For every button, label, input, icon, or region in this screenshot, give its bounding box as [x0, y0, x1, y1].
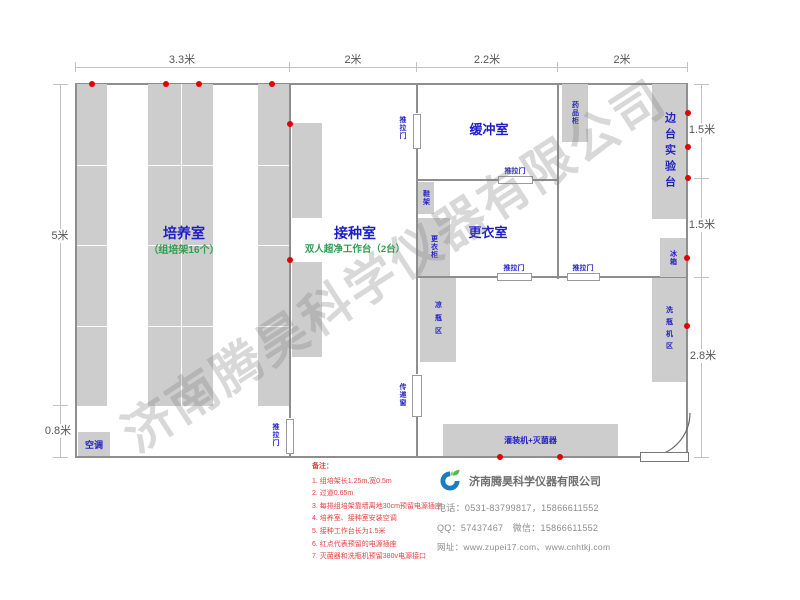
medicine-cabinet: 药品柜: [562, 84, 588, 142]
power-outlet-dot: [685, 175, 691, 181]
room-sub-inoculation: 双人超净工作台（2台）: [281, 241, 429, 255]
power-outlet-dot: [196, 81, 202, 87]
sliding-door-changing-south-label: 推拉门: [493, 263, 535, 273]
dim-label-top-2: 2米: [328, 53, 378, 67]
power-outlet-dot: [287, 121, 293, 127]
shoe-rack-label: 鞋架: [423, 190, 430, 206]
power-outlet-dot: [685, 110, 691, 116]
transfer-window: [412, 375, 422, 417]
company-name: 济南腾昊科学仪器有限公司: [469, 473, 601, 489]
dim-label-top-3: 2.2米: [457, 53, 517, 67]
room-label-changing: 更衣室: [438, 222, 538, 241]
power-outlet-dot: [163, 81, 169, 87]
sliding-door-changing-south: [497, 273, 532, 281]
bottle-cooling-area: 凉瓶区: [420, 278, 456, 362]
dim-label-top-4: 2米: [597, 53, 647, 67]
dim-tick: [75, 62, 76, 72]
dim-label-right-3: 2.8米: [682, 349, 724, 363]
dim-tick: [694, 457, 709, 458]
note-item: 7. 灭菌器和洗瓶机预留380v电源接口: [312, 551, 472, 564]
culture-rack-column-1: [77, 84, 107, 406]
company-phone: 电话：0531-83799817，15866611552: [437, 501, 657, 514]
transfer-window-label: 传递窗: [399, 383, 406, 407]
air-conditioner: 空调: [78, 432, 110, 456]
air-conditioner-label: 空调: [85, 438, 103, 451]
room-sub-culture: （组培架16个）: [120, 241, 248, 256]
wall-buffer-changing: [417, 179, 558, 181]
sliding-door-buffer-label: 推拉门: [399, 116, 406, 140]
wall-changing-bottom: [417, 276, 688, 278]
power-outlet-dot: [287, 257, 293, 263]
dim-tick: [289, 62, 290, 72]
power-outlet-dot: [684, 323, 690, 329]
floor-plan: 3.3米 2米 2.2米 2米 5米 0.8米 1.5米 1.5米 2.8米 空…: [0, 0, 800, 600]
sliding-door-buffer-changing-label: 推拉门: [494, 166, 536, 176]
dim-line-top: [75, 67, 688, 68]
power-outlet-dot: [497, 454, 503, 460]
sliding-door-buffer-changing: [498, 176, 533, 184]
sliding-door-culture-label: 推拉门: [272, 423, 279, 447]
sliding-door-bench-south: [567, 273, 600, 281]
company-logo-icon: [437, 468, 463, 494]
bottle-washer-label: 洗瓶机区: [666, 306, 673, 354]
company-web: 网址：www.zupei17.com、www.cnhtkj.com: [437, 541, 657, 553]
power-outlet-dot: [89, 81, 95, 87]
wall-right: [686, 83, 688, 458]
medicine-cabinet-label: 药品柜: [572, 101, 579, 125]
dim-line-left: [60, 84, 61, 458]
fridge-label: 冰箱: [670, 250, 677, 266]
dim-tick: [694, 178, 709, 179]
dim-tick: [53, 457, 68, 458]
dim-tick: [53, 405, 68, 406]
dim-line-right: [701, 84, 702, 458]
bottle-washer-area: 洗瓶机区: [652, 278, 686, 382]
dim-tick: [416, 62, 417, 72]
dim-tick: [687, 62, 688, 72]
room-label-culture: 培养室: [134, 223, 234, 243]
power-outlet-dot: [557, 454, 563, 460]
wall-culture-inoculation: [289, 83, 291, 458]
sliding-door-bench-south-label: 推拉门: [562, 263, 604, 273]
company-block: 济南腾昊科学仪器有限公司 电话：0531-83799817，1586661155…: [437, 468, 657, 553]
side-lab-bench: 边台实验台: [652, 84, 686, 219]
sliding-door-buffer: [413, 114, 421, 149]
clean-workbench-1: [292, 123, 322, 218]
fridge: 冰箱: [660, 238, 686, 277]
dim-tick: [557, 62, 558, 72]
wardrobe-label: 更衣柜: [431, 235, 438, 259]
wall-buffer-bench: [557, 83, 559, 279]
room-label-buffer: 缓冲室: [439, 119, 539, 138]
room-label-inoculation: 接种室: [305, 223, 405, 243]
power-outlet-dot: [684, 255, 690, 261]
dim-label-top-1: 3.3米: [152, 53, 212, 67]
filling-sterilizer-label: 灌装机+灭菌器: [504, 435, 557, 446]
side-lab-bench-label: 边台实验台: [664, 112, 675, 192]
dim-tick: [53, 84, 68, 85]
shoe-rack: 鞋架: [418, 182, 434, 214]
bottle-cooling-label: 凉瓶区: [435, 301, 442, 340]
dim-tick: [694, 277, 709, 278]
sliding-door-culture: [286, 419, 294, 454]
dim-tick: [694, 84, 709, 85]
power-outlet-dot: [269, 81, 275, 87]
entrance-door-leaf: [640, 452, 689, 462]
filling-sterilizer: 灌装机+灭菌器: [443, 424, 618, 456]
wall-bottom: [75, 456, 688, 458]
clean-workbench-2: [292, 262, 322, 357]
power-outlet-dot: [685, 144, 691, 150]
company-qq: QQ：57437467 微信：15866611552: [437, 521, 657, 534]
